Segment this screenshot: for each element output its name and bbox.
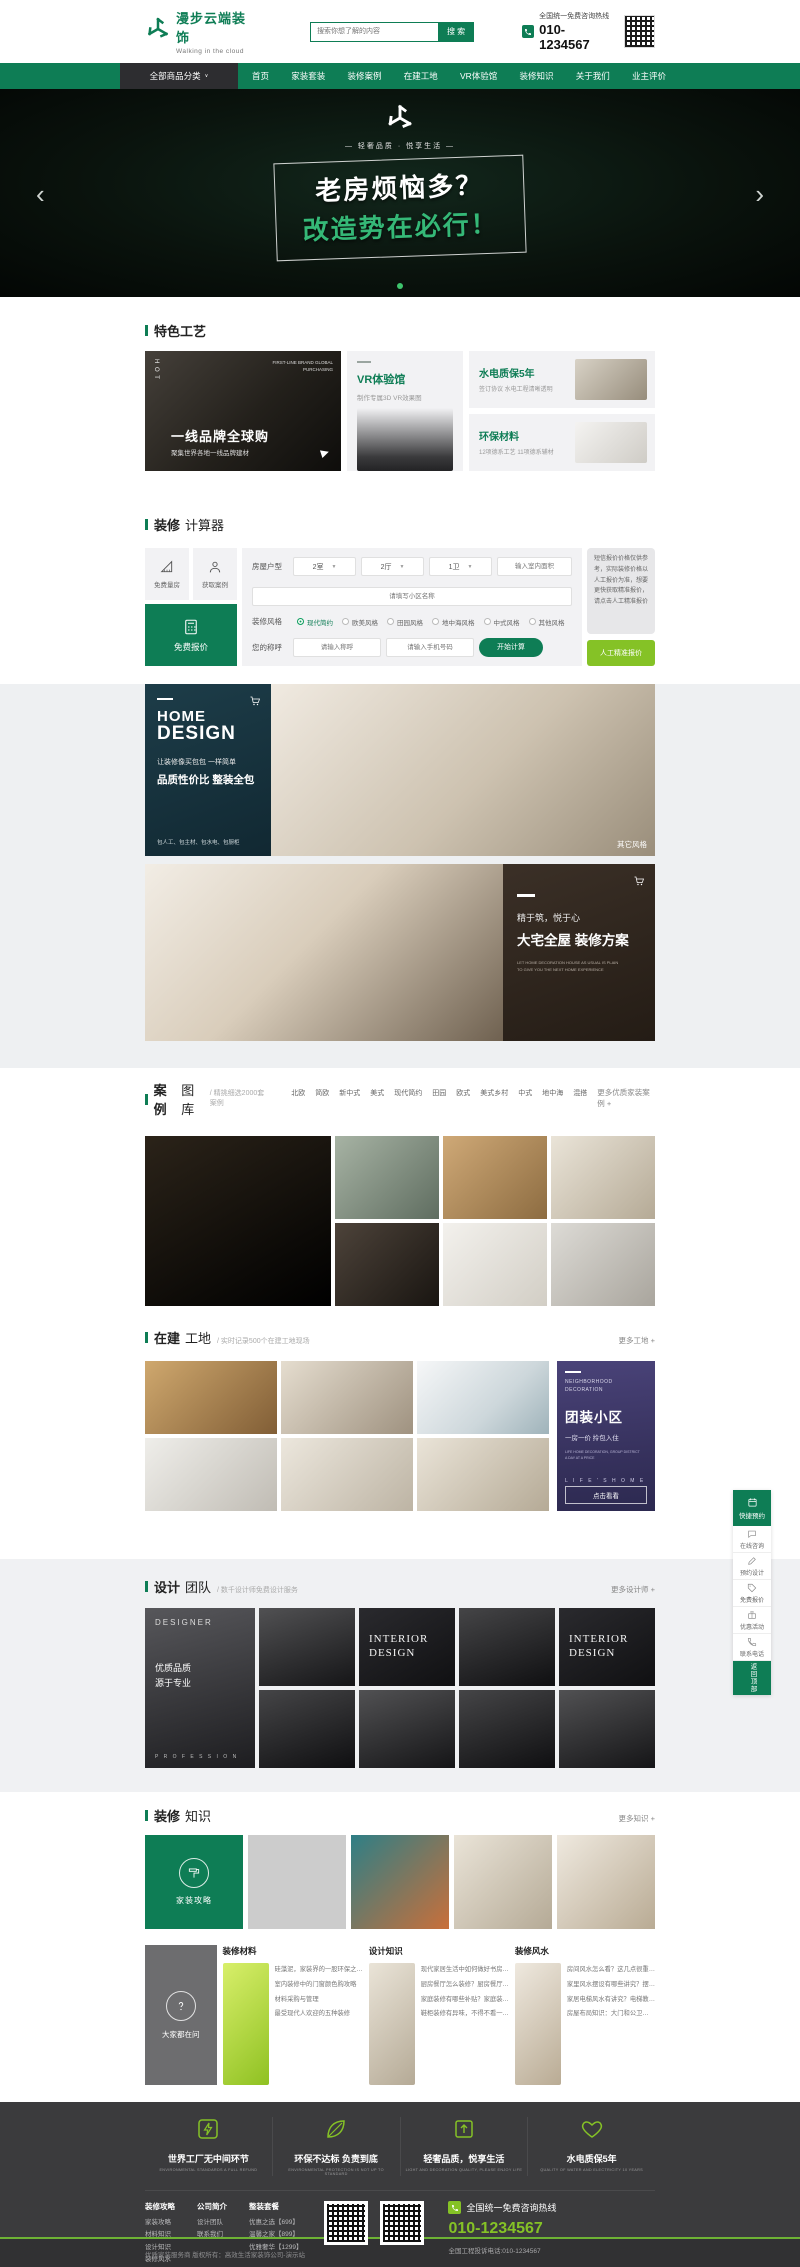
promo-banners-section: HOME DESIGN 让装修像买包包 一样简单 品质性价比 整装全包 包人工、…	[0, 684, 800, 1068]
all-categories-button[interactable]: 全部商品分类 ∨	[120, 63, 238, 89]
design-article-list: 现代家居生活中如何做好书房… 厨房餐厅怎么装修？厨房餐厅… 家庭装修有哪些补贴？…	[421, 1963, 509, 2085]
warranty-image	[575, 359, 647, 400]
plane-arrow-icon	[320, 448, 330, 458]
case-image[interactable]	[443, 1136, 547, 1219]
footer-link[interactable]: 设计团队	[197, 2217, 227, 2229]
features-title: 特色工艺	[154, 321, 206, 340]
nav-item-packages[interactable]: 家装套装	[291, 70, 325, 82]
carousel-prev-arrow[interactable]: ‹	[36, 181, 45, 207]
home-design-banner[interactable]: HOME DESIGN 让装修像买包包 一样简单 品质性价比 整装全包 包人工、…	[145, 684, 655, 856]
copyright-text: 优质家装服务商 版权所有：高效生活家装饰公司-演示站	[145, 2252, 305, 2259]
hero-logo-icon	[0, 103, 800, 138]
feature-eyebrow: FIRST-LINE BRAND GLOBALPURCHASING	[272, 359, 333, 373]
phone-icon	[747, 1637, 757, 1647]
nav-item-about[interactable]: 关于我们	[576, 70, 610, 82]
more-cases-link[interactable]: 更多优质家装案例 +	[597, 1087, 655, 1109]
hero-text-frame: 老房烦恼多？ 改造势在必行！	[273, 155, 526, 262]
title-accent-bar	[145, 519, 148, 530]
design-column-title: 设计知识	[369, 1945, 509, 1957]
knowledge-title-light: 知识	[185, 1806, 211, 1825]
footer-qr-code	[380, 2201, 424, 2245]
halls-select[interactable]: 2厅▼	[361, 557, 424, 576]
knowledge-image[interactable]	[454, 1835, 552, 1929]
style-radio-chinese[interactable]: 中式风格	[484, 617, 520, 627]
footer-hotline-label: 全国统一免费咨询热线	[466, 2201, 556, 2214]
style-radio-other[interactable]: 其他风格	[529, 617, 565, 627]
hot-tag: H O T	[153, 359, 159, 380]
case-image-large[interactable]	[145, 1136, 331, 1306]
banner-line2: 品质性价比 整装全包	[157, 772, 259, 787]
team-title-strong: 设计	[154, 1577, 180, 1596]
calculator-title-light: 计算器	[185, 515, 224, 534]
area-input[interactable]	[497, 557, 572, 576]
roller-icon	[179, 1858, 209, 1888]
banner-photo: 其它风格	[271, 684, 655, 856]
tab-american-country[interactable]: 美式乡村	[480, 1088, 508, 1098]
free-quote-label: 免费报价	[174, 641, 208, 653]
calculator-icon	[182, 618, 200, 636]
gift-icon	[747, 1610, 757, 1620]
fengshui-column-title: 装修风水	[515, 1945, 655, 1957]
hero-headline-2: 改造势在必行！	[302, 204, 499, 248]
article-link[interactable]: 房屋布局知识：大门和公卫…	[567, 2007, 655, 2022]
knowledge-image[interactable]	[248, 1835, 346, 1929]
page: 漫步云端装饰 Walking in the cloud 搜 索 全国统一免费咨询…	[0, 0, 800, 2220]
dash-decoration	[357, 361, 371, 363]
leaf-icon	[324, 2117, 348, 2141]
team-section: 设计 团队 / 数千设计师免费设计服务 更多设计师 + DESIGNER 优质品…	[0, 1559, 800, 1792]
quick-action-widget: 快捷预约 在线咨询 预约设计 免费报价 优惠活动 联系电话 返回顶部	[733, 1490, 771, 1695]
main-nav: 全部商品分类 ∨ 首页 家装套装 装修案例 在建工地 VR体验馆 装修知识 关于…	[0, 63, 800, 89]
cases-subtitle: / 精挑细选2000套案例	[210, 1088, 269, 1108]
promo-caption: LIFE HOME DECORATION, GROUP DISTRICTA DA…	[565, 1450, 647, 1462]
designer-quote: 优质品质源于专业	[155, 1661, 245, 1692]
case-image[interactable]	[335, 1223, 439, 1306]
phone-input[interactable]	[386, 638, 474, 657]
book-design-button[interactable]: 预约设计	[733, 1553, 771, 1580]
site-image[interactable]	[417, 1438, 549, 1511]
designer-photo[interactable]	[259, 1608, 355, 1686]
site-image[interactable]	[281, 1361, 413, 1434]
name-input[interactable]	[293, 638, 381, 657]
designer-feature-tile[interactable]: DESIGNER 优质品质源于专业 P R O F E S S I O N	[145, 1608, 255, 1768]
tab-pastoral[interactable]: 田园	[432, 1088, 446, 1098]
materials-image[interactable]	[223, 1963, 269, 2085]
cart-icon	[249, 694, 261, 712]
designer-photo[interactable]	[459, 1608, 555, 1686]
design-image[interactable]	[369, 1963, 415, 2085]
more-sites-link[interactable]: 更多工地 +	[619, 1335, 655, 1346]
heart-icon	[580, 2117, 604, 2141]
phone-icon	[448, 2201, 461, 2214]
title-accent-bar	[145, 1332, 148, 1343]
team-title-light: 团队	[185, 1577, 211, 1596]
ask-label: 大家都在问	[162, 2029, 200, 2040]
arrow-up-box-icon	[452, 2117, 476, 2141]
eco-image	[575, 422, 647, 463]
header-qr-code	[624, 15, 655, 48]
back-to-top-button[interactable]: 返回顶部	[733, 1661, 771, 1695]
calculator-form: 房屋户型 2室▼ 2厅▼ 1卫▼ 装修风格 现代简约 欧美风格 田园风格	[242, 548, 582, 666]
person-icon	[207, 559, 223, 575]
team-subtitle: / 数千设计师免费设计服务	[217, 1585, 298, 1595]
manual-quote-button[interactable]: 人工精准报价	[587, 640, 655, 666]
title-accent-bar	[145, 1810, 148, 1821]
free-measure-label: 免费量房	[154, 579, 180, 589]
site-search: 搜 索	[310, 22, 474, 42]
article-link[interactable]: 厨房餐厅怎么装修？厨房餐厅…	[421, 1978, 509, 1993]
title-accent-bar	[145, 325, 148, 336]
footer-feature-eco: 环保不达标 负责到底 ENVIRONMENTAL PROTECTION IS N…	[273, 2117, 401, 2176]
case-style-tabs: 北欧 简欧 新中式 美式 现代简约 田园 欧式 美式乡村 中式 地中海 混搭	[291, 1088, 587, 1098]
materials-article-list: 硅藻泥，家装界的一股环保之… 室内装修中的门窗颜色购攻略 材料采购与管理 最受现…	[275, 1963, 363, 2085]
sites-subtitle: / 实时记录500个在建工地现场	[217, 1336, 310, 1346]
feature-main-subtitle: 聚集世界各地一线品牌建材	[171, 447, 249, 457]
banner-line1: 让装修像买包包 一样简单	[157, 757, 259, 767]
banner-line3: 包人工、包主材、包水电、包厨柜	[157, 838, 240, 846]
tab-simple-euro[interactable]: 简欧	[315, 1088, 329, 1098]
feature-vr-card[interactable]: VR体验馆 制作专属3D VR效果图	[347, 351, 463, 471]
carousel-next-arrow[interactable]: ›	[755, 181, 764, 207]
top-header: 漫步云端装饰 Walking in the cloud 搜 索 全国统一免费咨询…	[0, 0, 800, 63]
mansion-caption: LET HOME DECORATION HOUSE AS USUAL IS PL…	[517, 959, 641, 973]
search-button[interactable]: 搜 索	[438, 22, 474, 42]
tab-european[interactable]: 欧式	[456, 1088, 470, 1098]
case-image[interactable]	[443, 1223, 547, 1306]
promo-life-text: L I F E ' S H O M E	[565, 1478, 647, 1484]
chat-icon	[747, 1529, 757, 1539]
banner-photo	[145, 864, 503, 1041]
cases-title-light: 图库	[181, 1080, 204, 1118]
contact-phone-button[interactable]: 联系电话	[733, 1634, 771, 1661]
promo-button[interactable]: 点击看看	[565, 1486, 647, 1504]
mansion-panel: 精于筑，悦于心 大宅全屋 装修方案 LET HOME DECORATION HO…	[503, 864, 655, 1041]
site-image[interactable]	[145, 1438, 277, 1511]
tab-mediterranean[interactable]: 地中海	[542, 1088, 563, 1098]
footer-link[interactable]: 温馨之家【899】	[249, 2229, 302, 2241]
header-hotline: 全国统一免费咨询热线 010-1234567	[522, 11, 610, 52]
pencil-icon	[747, 1556, 757, 1566]
article-link[interactable]: 家居电梯风水有讲究？电梯教…	[567, 1993, 655, 2008]
calendar-icon	[747, 1497, 758, 1508]
brand-name: 漫步云端装饰	[176, 8, 252, 46]
promo-subtitle: 一房一价 拎包入住	[565, 1432, 647, 1442]
feature-main-title: 一线品牌全球购	[171, 426, 269, 445]
profession-label: P R O F E S S I O N	[155, 1754, 238, 1760]
phone-icon	[522, 25, 534, 38]
article-link[interactable]: 家庭装修有哪些补贴？家庭装…	[421, 1993, 509, 2008]
footer-qr-code	[324, 2201, 368, 2245]
promo-eyebrow: NEIGHBORHOODDECORATION	[565, 1379, 647, 1394]
home-design-panel: HOME DESIGN 让装修像买包包 一样简单 品质性价比 整装全包 包人工、…	[145, 684, 271, 856]
interior-design-tile[interactable]: INTERIORDESIGN	[559, 1608, 655, 1686]
mansion-banner[interactable]: 精于筑，悦于心 大宅全屋 装修方案 LET HOME DECORATION HO…	[145, 864, 655, 1041]
knowledge-section: 装修 知识 更多知识 + 家装攻略	[0, 1792, 800, 2102]
calculator-title-strong: 装修	[154, 515, 180, 534]
carousel-dot[interactable]	[397, 283, 403, 289]
brand-tagline: Walking in the cloud	[176, 48, 252, 55]
nav-item-vr[interactable]: VR体验馆	[460, 70, 497, 82]
article-link[interactable]: 房间风水怎么看？这几点很重…	[567, 1963, 655, 1978]
tab-mix[interactable]: 混搭	[573, 1088, 587, 1098]
style-radio-pastoral[interactable]: 田园风格	[387, 617, 423, 627]
tab-new-chinese[interactable]: 新中式	[339, 1088, 360, 1098]
question-icon	[166, 1991, 196, 2021]
nav-item-sites[interactable]: 在建工地	[404, 70, 438, 82]
caret-down-icon: ∨	[205, 73, 209, 79]
free-quote-button[interactable]: 免费报价	[145, 604, 237, 666]
other-style-link[interactable]: 其它风格	[617, 839, 647, 850]
footer-feature-factory: 世界工厂无中间环节 ENVIRONMENTAL STANDARDS A FULL…	[145, 2117, 273, 2176]
free-measure-tile[interactable]: 免费量房	[145, 548, 189, 600]
article-link[interactable]: 硅藻泥，家装界的一股环保之…	[275, 1963, 363, 1978]
cases-section: 案例 图库 / 精挑细选2000套案例 北欧 简欧 新中式 美式 现代简约 田园…	[0, 1068, 800, 1559]
brand-mark-icon	[145, 16, 171, 47]
article-link[interactable]: 室内装修中的门窗颜色购攻略	[275, 1978, 363, 1993]
vr-title: VR体验馆	[357, 371, 453, 387]
ask-tile[interactable]: 大家都在问	[145, 1945, 217, 2085]
designer-photo[interactable]	[259, 1690, 355, 1768]
brand-logo[interactable]: 漫步云端装饰 Walking in the cloud	[145, 8, 252, 55]
features-section: 特色工艺 H O T FIRST-LINE BRAND GLOBALPURCHA…	[0, 297, 800, 666]
knowledge-title-strong: 装修	[154, 1806, 180, 1825]
interior-design-tile[interactable]: INTERIORDESIGN	[359, 1608, 455, 1686]
site-image[interactable]	[417, 1361, 549, 1434]
start-calculate-button[interactable]: 开始计算	[479, 638, 543, 657]
fengshui-article-list: 房间风水怎么看？这几点很重… 家里风水摆设有哪些讲究？摆… 家居电梯风水有讲究？…	[567, 1963, 655, 2085]
name-label: 您的称呼	[252, 642, 288, 653]
more-knowledge-link[interactable]: 更多知识 +	[619, 1813, 655, 1824]
tab-nordic[interactable]: 北欧	[291, 1088, 305, 1098]
tab-american[interactable]: 美式	[370, 1088, 384, 1098]
case-image[interactable]	[551, 1223, 655, 1306]
strategy-tile[interactable]: 家装攻略	[145, 1835, 243, 1929]
materials-column-title: 装修材料	[223, 1945, 363, 1957]
style-radio-western[interactable]: 欧美风格	[342, 617, 378, 627]
knowledge-image[interactable]	[557, 1835, 655, 1929]
get-cases-label: 获取案例	[202, 579, 228, 589]
nav-item-reviews[interactable]: 业主评价	[632, 70, 666, 82]
designer-photo[interactable]	[559, 1690, 655, 1768]
dash-decoration	[565, 1371, 581, 1373]
sites-title-strong: 在建	[154, 1328, 180, 1347]
rooms-select[interactable]: 2室▼	[293, 557, 356, 576]
footer-link[interactable]: 优惠之选【699】	[249, 2217, 302, 2229]
more-designers-link[interactable]: 更多设计师 +	[611, 1584, 655, 1595]
nav-item-knowledge[interactable]: 装修知识	[519, 70, 553, 82]
article-link[interactable]: 现代家居生活中如何做好书房…	[421, 1963, 509, 1978]
banner-title-design: DESIGN	[157, 723, 259, 745]
feature-main-card[interactable]: H O T FIRST-LINE BRAND GLOBALPURCHASING …	[145, 351, 341, 471]
title-accent-bar	[145, 1581, 148, 1592]
feature-warranty-card[interactable]: 水电质保5年 签订协议 水电工程清晰透明	[469, 351, 655, 408]
article-link[interactable]: 家里风水摆设有哪些讲究？摆…	[567, 1978, 655, 1993]
style-label: 装修风格	[252, 616, 288, 627]
feature-eco-card[interactable]: 环保材料 12项德系工艺 11项德系辅材	[469, 414, 655, 471]
promo-title: 团装小区	[565, 1406, 647, 1426]
hotline-label: 全国统一免费咨询热线	[539, 11, 610, 21]
site-image[interactable]	[145, 1361, 277, 1434]
dash-decoration	[157, 698, 173, 700]
nav-item-cases[interactable]: 装修案例	[347, 70, 381, 82]
get-cases-tile[interactable]: 获取案例	[193, 548, 237, 600]
hotline-number: 010-1234567	[539, 22, 610, 52]
quote-notice: 短信报价价格仅供参考，实际装修价格以人工报价为准，想要更快获取精准报价，请点击人…	[587, 548, 655, 634]
site-image[interactable]	[281, 1438, 413, 1511]
fengshui-image[interactable]	[515, 1963, 561, 2085]
title-accent-bar	[145, 1094, 148, 1105]
free-quote-quick-button[interactable]: 免费报价	[733, 1580, 771, 1607]
footer-feature-quality: 轻奢品质，悦享生活 LIGHT AND DECORATION QUALITY, …	[401, 2117, 529, 2176]
footer-hotline-number: 010-1234567	[448, 2220, 556, 2238]
tab-modern[interactable]: 现代简约	[394, 1088, 422, 1098]
page-footer: 世界工厂无中间环节 ENVIRONMENTAL STANDARDS A FULL…	[0, 2102, 800, 2237]
footer-feature-warranty: 水电质保5年 QUALITY OF WATER AND ELECTRICITY …	[528, 2117, 655, 2176]
dash-decoration	[517, 894, 535, 897]
article-link[interactable]: 材料采购与管理	[275, 1993, 363, 2008]
house-type-label: 房屋户型	[252, 561, 288, 572]
nav-item-home[interactable]: 首页	[252, 70, 269, 82]
tag-icon	[747, 1583, 757, 1593]
all-categories-label: 全部商品分类	[150, 70, 201, 82]
community-input[interactable]	[252, 587, 572, 606]
footer-link[interactable]: 联系我们	[197, 2229, 227, 2241]
case-image[interactable]	[551, 1136, 655, 1219]
footer-link[interactable]: 家装攻略	[145, 2217, 175, 2229]
designer-photo[interactable]	[459, 1690, 555, 1768]
promotion-button[interactable]: 优惠活动	[733, 1607, 771, 1634]
style-radio-mediterranean[interactable]: 地中海风格	[432, 617, 475, 627]
lightning-badge-icon	[196, 2117, 220, 2141]
ruler-icon	[159, 559, 175, 575]
cart-icon	[633, 874, 645, 892]
sites-title-light: 工地	[185, 1328, 211, 1347]
tab-chinese[interactable]: 中式	[518, 1088, 532, 1098]
designer-photo[interactable]	[359, 1690, 455, 1768]
article-link[interactable]: 鞋柜装修有异味，不得不看一…	[421, 2007, 509, 2022]
strategy-label: 家装攻略	[176, 1895, 212, 1906]
online-consult-button[interactable]: 在线咨询	[733, 1526, 771, 1553]
hero-headline-1: 老房烦恼多？	[301, 165, 498, 209]
article-link[interactable]: 最受现代人欢迎的五种装修	[275, 2007, 363, 2022]
footer-link[interactable]: 材料知识	[145, 2229, 175, 2241]
quick-booking-button[interactable]: 快捷预约	[733, 1490, 771, 1526]
vr-subtitle: 制作专属3D VR效果图	[357, 392, 453, 402]
hero-carousel: — 轻奢品质 · 悦享生活 — 老房烦恼多？ 改造势在必行！ ‹ ›	[0, 89, 800, 297]
search-input[interactable]	[310, 22, 438, 42]
style-radio-modern[interactable]: 现代简约	[297, 617, 333, 627]
knowledge-image[interactable]	[351, 1835, 449, 1929]
designer-label: DESIGNER	[155, 1618, 245, 1627]
case-image[interactable]	[335, 1136, 439, 1219]
vr-image	[357, 408, 453, 471]
baths-select[interactable]: 1卫▼	[429, 557, 492, 576]
hero-slogan: — 轻奢品质 · 悦享生活 —	[0, 141, 800, 151]
group-decoration-promo-card[interactable]: NEIGHBORHOODDECORATION 团装小区 一房一价 拎包入住 LI…	[557, 1361, 655, 1511]
cases-title-strong: 案例	[154, 1080, 177, 1118]
mansion-line2: 大宅全屋 装修方案	[517, 929, 641, 949]
mansion-line1: 精于筑，悦于心	[517, 911, 641, 924]
